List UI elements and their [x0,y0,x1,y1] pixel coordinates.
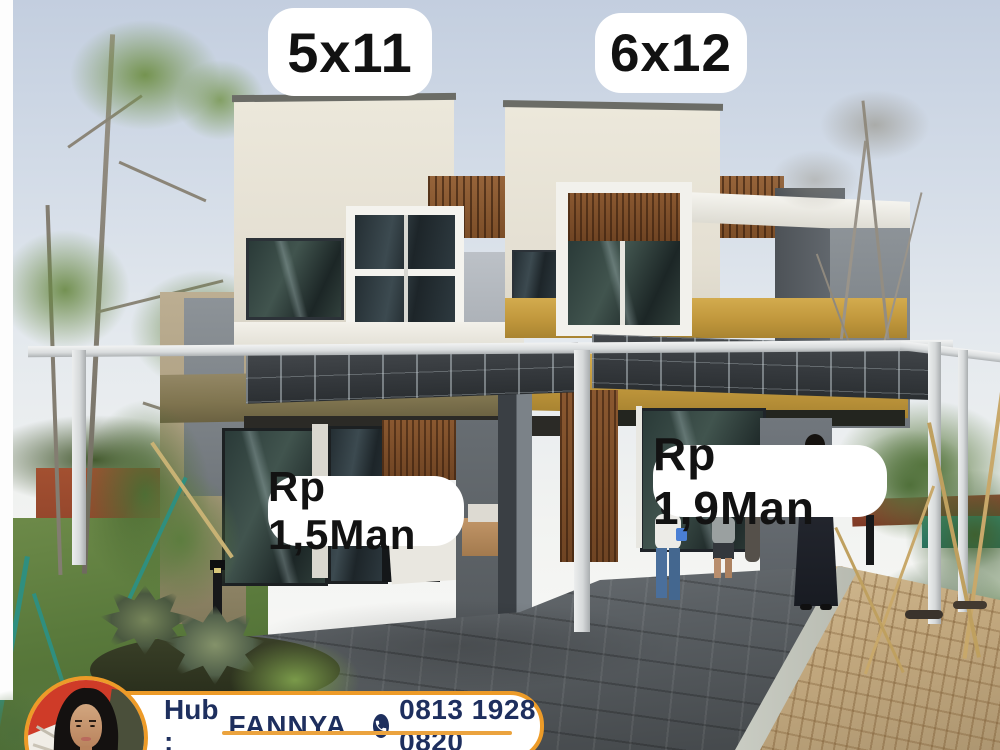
portal-wood-slats [568,193,680,241]
left-size-badge: 5x11 [268,8,432,96]
balcony-door-frame [620,241,625,325]
twig-cluster [820,90,930,160]
lamp-glow [214,568,221,573]
foliage-blob [0,230,130,350]
person-shorts [713,543,734,559]
portal-mullion [404,215,408,326]
avatar-lips [81,737,91,741]
canopy-post [574,350,590,632]
left-price-badge: Rp 1,5Man [268,476,464,546]
avatar-eye [76,725,81,727]
white-box [468,504,498,522]
person-leg [714,558,721,578]
agent-name: FANNYA [228,710,347,742]
cardboard-box [462,518,502,556]
real-estate-flyer: 5x11 6x12 Rp 1,5Man Rp 1,9Man Hub : FANN… [0,0,1000,750]
photo-edge-strip [0,0,13,700]
twig-cluster [770,150,860,210]
right-size-text: 6x12 [610,23,732,84]
phone-number: 0813 1928 0820 [399,694,540,750]
person-foot [820,604,832,610]
right-size-badge: 6x12 [595,13,747,93]
avatar-neck [80,746,92,750]
contact-underline [222,731,512,735]
left-size-text: 5x11 [287,20,413,85]
avatar-eyebrow [75,720,82,722]
person-leg [725,558,732,578]
person-foot [800,604,812,610]
left-price-text: Rp 1,5Man [268,463,464,559]
right-gf-door-frame [636,406,642,548]
sandals [905,610,943,619]
sandals [953,601,987,609]
right-price-badge: Rp 1,9Man [653,445,887,517]
avatar-eyebrow [89,720,96,722]
middle-column [498,388,532,636]
left-house-upper-window [246,238,344,320]
avatar-eye [90,725,95,727]
right-price-text: Rp 1,9Man [653,427,887,535]
hub-label: Hub : [164,694,218,750]
person-leg [656,548,667,598]
avatar-face [70,704,102,748]
canopy-post [72,350,86,565]
person-leg [669,548,680,600]
